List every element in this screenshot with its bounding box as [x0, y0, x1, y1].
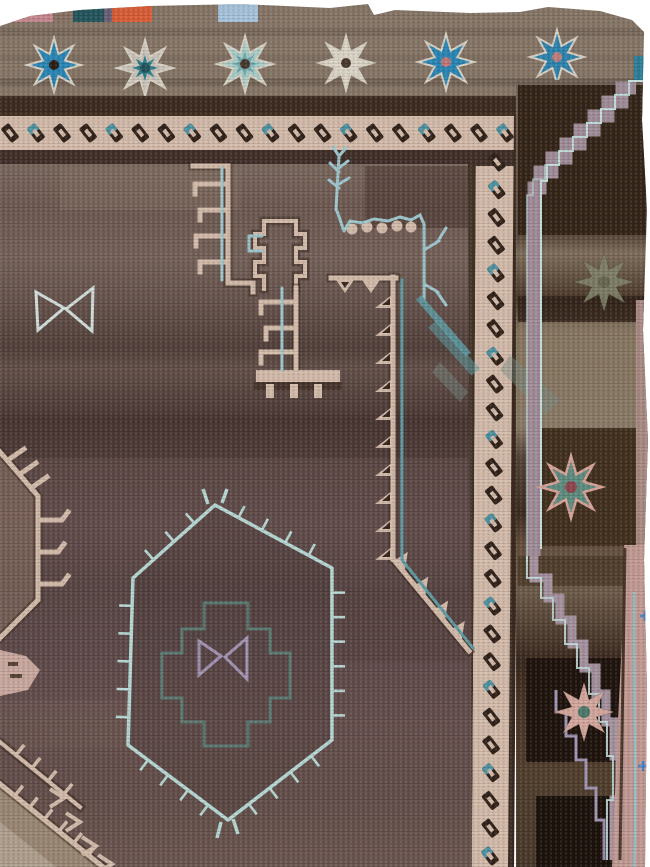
rug-photograph — [0, 0, 650, 867]
rug-art — [0, 0, 650, 867]
patch — [0, 0, 13, 22]
row-texture — [0, 0, 650, 867]
